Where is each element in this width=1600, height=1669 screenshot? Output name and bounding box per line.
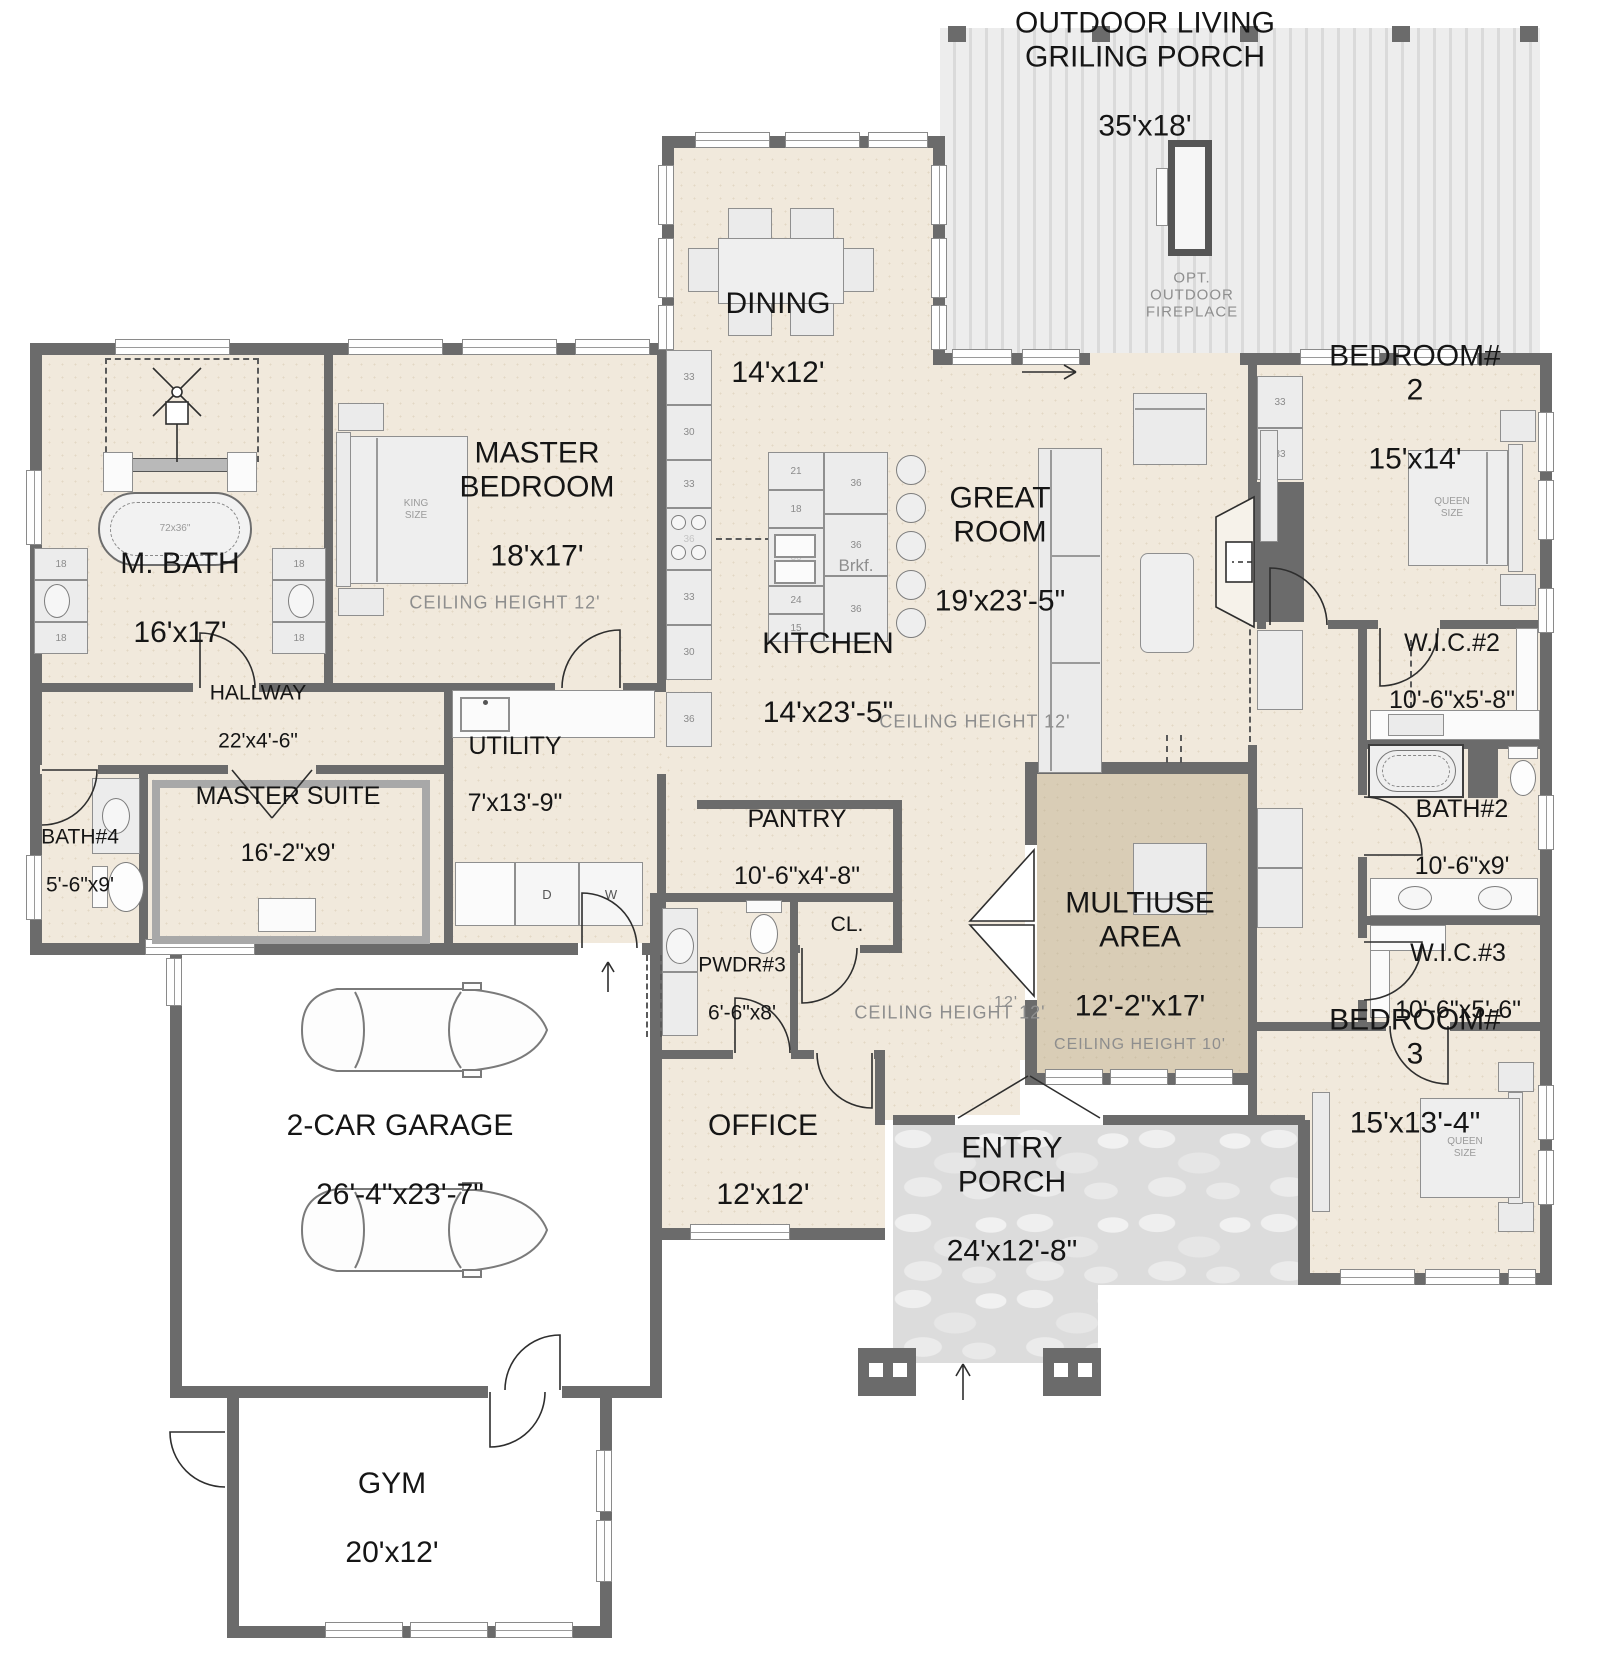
room-dims: 10'-6"x9': [1415, 852, 1510, 881]
wall: [1298, 1120, 1310, 1285]
room-label-master-suite: MASTER SUITE 16'-2"x9': [196, 753, 381, 897]
room-label-great-room: GREAT ROOM 19'x23'-5": [935, 447, 1066, 654]
bar-stool: [896, 455, 926, 485]
island-sink: [774, 560, 816, 584]
label-opt-fireplace: OPT. OUTDOOR FIREPLACE: [1146, 270, 1238, 321]
room-name: OFFICE: [708, 1108, 818, 1143]
cased-opening-dashed: [1180, 735, 1182, 763]
bar-stool: [896, 493, 926, 523]
room-name: HALLWAY: [210, 682, 306, 706]
room-name: BATH#4: [41, 826, 119, 850]
shower-dashed-area: [105, 358, 259, 462]
deck-post: [948, 26, 966, 42]
french-door-opening: [1025, 845, 1037, 1000]
window: [1110, 1069, 1168, 1085]
window: [115, 339, 230, 355]
island-sink: [774, 534, 816, 558]
wall: [170, 1386, 662, 1398]
room-dims: 7'x13'-9": [468, 789, 563, 818]
room-label-bedroom2: BEDROOM# 2 15'x14': [1323, 305, 1508, 512]
nightstand: [1498, 1202, 1534, 1232]
window: [462, 339, 557, 355]
coffee-table: [1140, 553, 1194, 653]
room-dims: 16'x17': [120, 615, 239, 650]
burner: [671, 515, 686, 530]
window: [596, 1520, 612, 1582]
room-label-bath2: BATH#2 10'-6"x9': [1415, 766, 1510, 910]
window: [785, 132, 860, 148]
floor-plan: 72x36" 18 36 18 18 36 18 KING SIZE D W 3…: [0, 0, 1600, 1669]
room-label-bedroom3: BEDROOM# 3 15'x13'-4": [1323, 969, 1508, 1176]
room-name: OUTDOOR LIVING GRILING PORCH: [1015, 6, 1275, 75]
room-dims: 20'x12': [345, 1535, 438, 1570]
room-name: GREAT ROOM: [935, 481, 1066, 550]
room-label-garage: 2-CAR GARAGE 26'-4"x23'-7": [287, 1074, 514, 1247]
burner: [691, 515, 706, 530]
kitchen-cabinet: 36: [666, 692, 712, 747]
room-name: M. BATH: [120, 546, 239, 581]
room-label-outdoor-living: OUTDOOR LIVING GRILING PORCH 35'x18': [1015, 0, 1275, 179]
window: [1340, 1269, 1415, 1285]
vanity-cabinet: 18: [272, 622, 326, 654]
sofa-cushion-line: [1052, 662, 1100, 664]
room-name: GYM: [345, 1466, 438, 1501]
deck-post: [1520, 26, 1538, 42]
room-name: BEDROOM# 3: [1323, 1003, 1508, 1072]
deck-post: [1392, 26, 1410, 42]
room-name: PANTRY: [734, 805, 860, 834]
dresser: [1260, 430, 1278, 542]
window: [1425, 1269, 1500, 1285]
ceiling-height-label: CEILING HEIGHT 12': [879, 712, 1070, 733]
vanity-cabinet: [662, 972, 698, 1036]
porch-pillar: [1043, 1348, 1101, 1396]
window: [410, 1622, 488, 1638]
toilet-bowl: [1510, 760, 1536, 796]
window: [1538, 795, 1554, 850]
kitchen-cabinet: 33: [666, 460, 712, 508]
window: [658, 165, 674, 225]
window: [348, 339, 443, 355]
room-name: MULTIUSE AREA: [1065, 886, 1214, 955]
window: [1538, 588, 1554, 633]
room-dims: 16'-2"x9': [196, 839, 381, 868]
room-dims: 24'x12'-8": [947, 1235, 1078, 1270]
room-name: PWDR#3: [698, 954, 786, 978]
dryer: D: [515, 862, 579, 926]
cased-opening-dashed: [1166, 735, 1168, 763]
porch-pillar-inset: [893, 1363, 907, 1377]
room-label-bath4: BATH#4 5'-6"x9': [41, 802, 119, 923]
wall: [875, 1050, 885, 1125]
room-name: 2-CAR GARAGE: [287, 1108, 514, 1143]
bar-stool: [896, 608, 926, 638]
window: [495, 1622, 573, 1638]
kitchen-cabinet: 30: [666, 625, 712, 680]
room-dims: 14'x23'-5": [762, 695, 894, 730]
window: [868, 132, 928, 148]
room-name: BEDROOM# 2: [1323, 339, 1508, 408]
wall: [657, 343, 666, 692]
ceiling-height-label: CEILING HEIGHT 10': [1054, 1036, 1226, 1054]
window: [26, 855, 42, 920]
room-dims: 19'x23'-5": [935, 585, 1066, 620]
cased-opening-dashed: [646, 955, 648, 1037]
porch-pillar: [858, 1348, 916, 1396]
vanity-cabinet: 18: [34, 622, 88, 654]
vanity-cabinet: 18: [34, 548, 88, 580]
window: [931, 165, 947, 225]
door-opening: [488, 1386, 562, 1398]
room-dims: 12'-2"x17': [1065, 990, 1214, 1025]
door-width-label: 12': [994, 994, 1018, 1012]
window: [695, 132, 770, 148]
window: [658, 238, 674, 298]
burner: [691, 545, 706, 560]
media-cabinet: [1257, 868, 1303, 928]
wall: [170, 943, 182, 1398]
room-dims: 26'-4"x23'-7": [287, 1177, 514, 1212]
sink-basin: [288, 584, 314, 618]
burner: [671, 545, 686, 560]
window: [1175, 1069, 1233, 1085]
wall: [600, 1386, 612, 1638]
nightstand: [338, 403, 384, 431]
nightstand: [338, 588, 384, 616]
window: [658, 305, 674, 350]
bar-stool: [896, 570, 926, 600]
window: [1538, 1150, 1554, 1205]
sink-basin: [666, 928, 694, 964]
wall: [893, 800, 902, 900]
porch-pillar-inset: [869, 1363, 883, 1377]
room-label-utility: UTILITY 7'x13'-9": [468, 703, 563, 847]
bed-headboard: [336, 432, 351, 587]
room-name: W.I.C.#2: [1389, 629, 1515, 658]
room-name: DINING: [726, 286, 831, 321]
room-name: ENTRY PORCH: [947, 1131, 1078, 1200]
window: [596, 1450, 612, 1512]
room-dims: 18'x17': [459, 540, 614, 575]
room-label-office: OFFICE 12'x12': [708, 1074, 818, 1247]
window: [1538, 1085, 1554, 1140]
wall: [893, 893, 902, 953]
room-dims: 12'x12': [708, 1177, 818, 1212]
island-cabinet: 18: [768, 490, 824, 528]
window: [575, 339, 650, 355]
kitchen-cabinet: 33: [666, 350, 712, 405]
room-dims: 22'x4'-6": [210, 730, 306, 754]
door-opening: [1358, 795, 1367, 857]
island-cabinet: 36: [824, 452, 888, 514]
room-name: UTILITY: [468, 732, 563, 761]
window: [325, 1622, 403, 1638]
room-dims: 6'-6"x8': [698, 1002, 786, 1026]
vent-dash-line: [716, 538, 771, 540]
media-cabinet: [1257, 808, 1303, 868]
ceiling-height-label: CEILING HEIGHT 12': [409, 593, 600, 614]
toilet-tank: [1508, 746, 1538, 759]
door-opening: [814, 1050, 874, 1059]
shower-seat: [103, 452, 133, 492]
armchair-back: [1135, 408, 1205, 410]
window: [1538, 480, 1554, 540]
bar-stool: [896, 531, 926, 561]
room-label-wic2: W.I.C.#2 10'-6"x5'-8": [1389, 600, 1515, 744]
room-label-entry-porch: ENTRY PORCH 24'x12'-8": [947, 1097, 1078, 1304]
window: [1508, 1269, 1536, 1285]
bed-pillow-line: [376, 438, 378, 582]
room-name: KITCHEN: [762, 626, 894, 661]
room-name: CL.: [831, 913, 864, 937]
media-cabinet: [1257, 630, 1303, 710]
window: [952, 349, 1012, 365]
wall: [139, 765, 148, 952]
room-dims: 10'-6"x4'-8": [734, 862, 860, 891]
window: [931, 238, 947, 298]
wall: [227, 1386, 239, 1638]
room-name: MASTER BEDROOM: [459, 436, 614, 505]
room-label-multiuse: MULTIUSE AREA 12'-2"x17': [1065, 852, 1214, 1059]
room-dims: 14'x12': [726, 355, 831, 390]
window: [931, 305, 947, 350]
bed-headboard: [1508, 444, 1523, 572]
window: [1045, 1069, 1103, 1085]
closet-island: [258, 898, 316, 932]
door-opening: [40, 765, 98, 774]
room-dims: 15'x13'-4": [1323, 1107, 1508, 1142]
breakfast-bar-label: Brkf.: [839, 556, 874, 576]
window: [1538, 412, 1554, 472]
room-label-kitchen: KITCHEN 14'x23'-5": [762, 592, 894, 765]
island-cabinet: 21: [768, 452, 824, 490]
vanity-cabinet: 18: [272, 548, 326, 580]
appliance: [455, 862, 515, 926]
shower-seat: [227, 452, 257, 492]
wall: [1248, 745, 1257, 1125]
porch-opening: [1090, 353, 1240, 365]
room-label-dining: DINING 14'x12': [726, 252, 831, 425]
media-cabinet: 33: [1257, 376, 1303, 428]
room-dims: 10'-6"x5'-8": [1389, 686, 1515, 715]
window: [166, 958, 182, 1006]
window: [26, 470, 42, 545]
room-dims: 5'-6"x9': [41, 874, 119, 898]
room-label-master-bedroom: MASTER BEDROOM 18'x17': [459, 402, 614, 609]
room-name: MASTER SUITE: [196, 782, 381, 811]
wall: [30, 943, 662, 955]
porch-pillar-inset: [1078, 1363, 1092, 1377]
room-name: BATH#2: [1415, 795, 1510, 824]
kitchen-cabinet: 33: [666, 570, 712, 625]
room-label-cl: CL.: [831, 889, 864, 961]
cased-opening-dashed: [1249, 610, 1251, 742]
window: [1022, 349, 1080, 365]
room-dims: 35'x18': [1015, 110, 1275, 145]
room-dims: 15'x14': [1323, 443, 1508, 478]
door-opening: [578, 943, 642, 955]
door-opening: [733, 1050, 791, 1059]
washer: W: [579, 862, 643, 926]
room-label-pwdr3: PWDR#3 6'-6"x8': [698, 930, 786, 1051]
room-label-gym: GYM 20'x12': [345, 1432, 438, 1605]
kitchen-cabinet: 30: [666, 405, 712, 460]
porch-pillar-inset: [1054, 1363, 1068, 1377]
armchair: [1133, 393, 1207, 465]
room-name: W.I.C.#3: [1395, 939, 1521, 968]
sink-basin: [44, 584, 70, 618]
king-size-label: KING SIZE: [404, 498, 428, 522]
